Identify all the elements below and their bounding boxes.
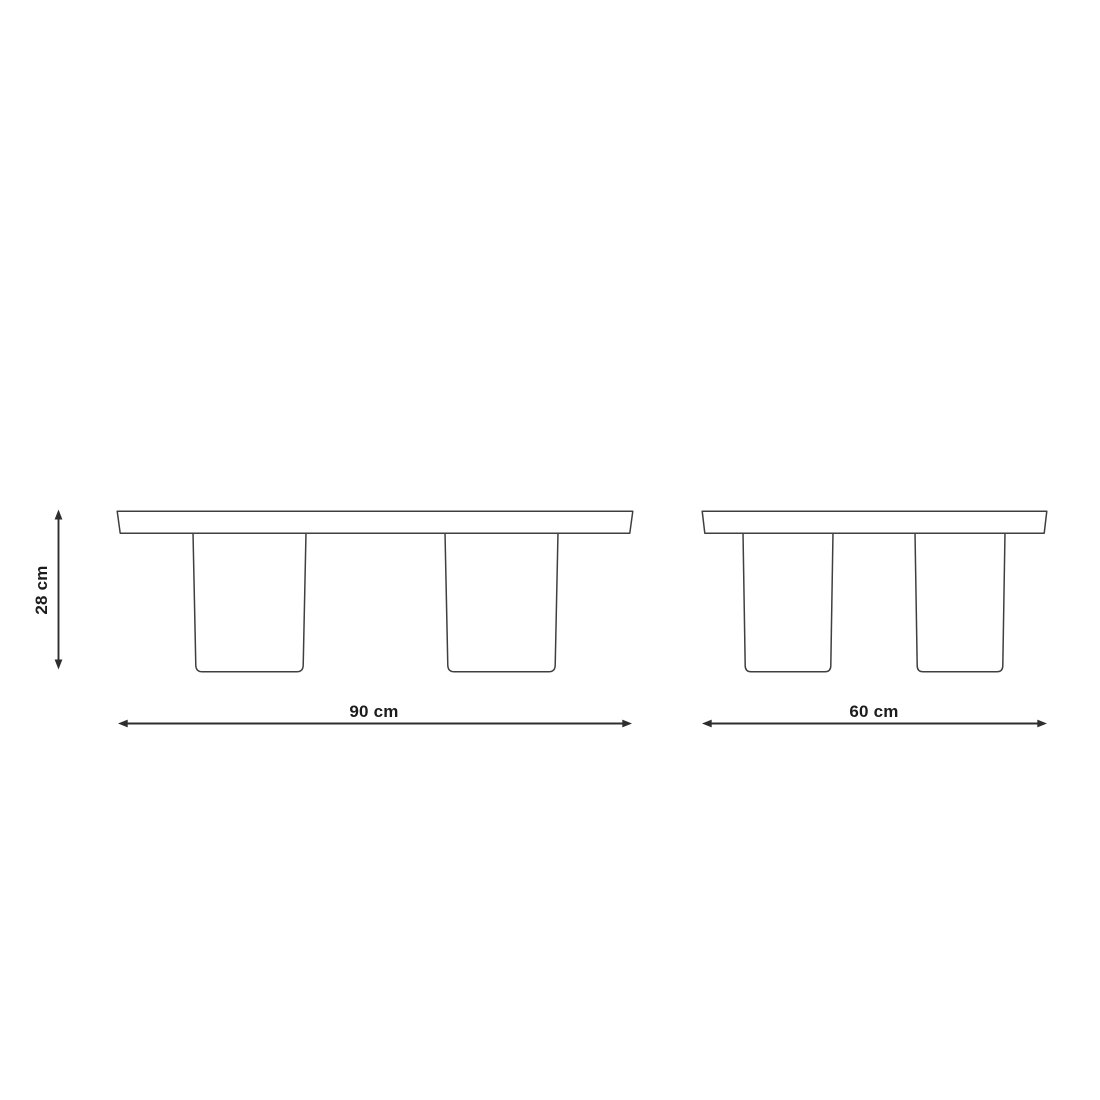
- large-width-arrowhead-left-icon: [118, 720, 128, 728]
- small-table-left-leg: [743, 533, 833, 672]
- large-width-dimension-label: 90 cm: [349, 702, 398, 721]
- height-arrowhead-down-icon: [55, 660, 63, 670]
- small-width-arrowhead-left-icon: [702, 720, 712, 728]
- small-table-drawing: [702, 511, 1047, 672]
- large-table-top: [117, 511, 633, 533]
- small-table-top: [702, 511, 1047, 533]
- large-table-drawing: [117, 511, 633, 672]
- large-table-left-leg: [193, 533, 306, 672]
- small-table-right-leg: [915, 533, 1005, 672]
- diagram-canvas: 28 cm 90 cm 60 cm: [0, 0, 1100, 1100]
- small-width-arrowhead-right-icon: [1037, 720, 1047, 728]
- height-arrowhead-up-icon: [55, 510, 63, 520]
- furniture-dimension-diagram: 28 cm 90 cm 60 cm: [0, 0, 1100, 1100]
- height-dimension-label: 28 cm: [32, 565, 51, 614]
- small-width-dimension-label: 60 cm: [849, 702, 898, 721]
- large-table-right-leg: [445, 533, 558, 672]
- large-width-arrowhead-right-icon: [622, 720, 632, 728]
